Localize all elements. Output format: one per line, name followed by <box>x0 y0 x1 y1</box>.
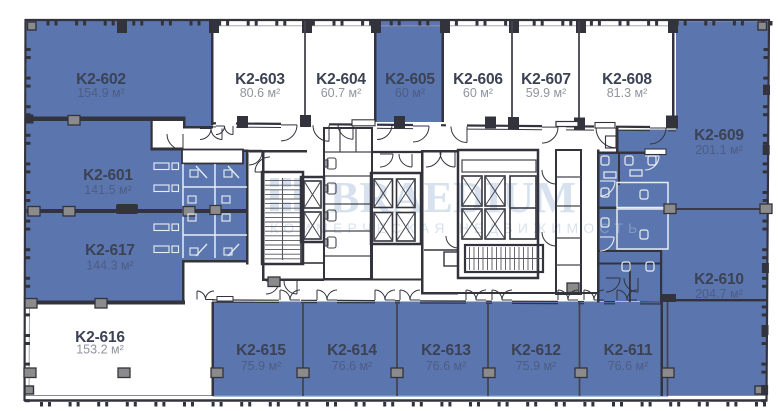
svg-text:204.7 м²: 204.7 м² <box>695 287 743 301</box>
svg-text:60.7 м²: 60.7 м² <box>321 86 362 100</box>
svg-text:59.9 м²: 59.9 м² <box>526 86 567 100</box>
svg-text:154.9 м²: 154.9 м² <box>77 86 125 100</box>
svg-text:80.6 м²: 80.6 м² <box>240 86 281 100</box>
svg-text:201.1 м²: 201.1 м² <box>695 143 743 157</box>
svg-text:K2-614: K2-614 <box>327 342 377 359</box>
svg-text:153.2 м²: 153.2 м² <box>76 343 124 357</box>
svg-text:76.6 м²: 76.6 м² <box>608 359 649 373</box>
svg-text:K2-612: K2-612 <box>511 342 561 359</box>
svg-text:K2-610: K2-610 <box>694 271 744 288</box>
svg-text:141.5 м²: 141.5 м² <box>84 183 132 197</box>
svg-text:60 м²: 60 м² <box>395 86 425 100</box>
svg-text:K2-615: K2-615 <box>236 342 286 359</box>
svg-text:K2-617: K2-617 <box>85 242 135 259</box>
svg-text:K2-611: K2-611 <box>604 342 653 359</box>
svg-text:КОММЕРЧЕСКАЯ НЕДВИЖИМОСТЬ: КОММЕРЧЕСКАЯ НЕДВИЖИМОСТЬ <box>270 220 642 236</box>
svg-text:76.6 м²: 76.6 м² <box>332 359 373 373</box>
svg-text:K2-613: K2-613 <box>421 342 471 359</box>
svg-text:75.9 м²: 75.9 м² <box>241 359 282 373</box>
svg-text:81.3 м²: 81.3 м² <box>607 86 648 100</box>
svg-text:75.9 м²: 75.9 м² <box>516 359 557 373</box>
svg-text:144.3 м²: 144.3 м² <box>86 259 134 273</box>
svg-text:K2-601: K2-601 <box>83 167 133 184</box>
svg-text:60 м²: 60 м² <box>463 86 493 100</box>
svg-text:K2-609: K2-609 <box>694 127 744 144</box>
svg-text:76.6 м²: 76.6 м² <box>426 359 467 373</box>
